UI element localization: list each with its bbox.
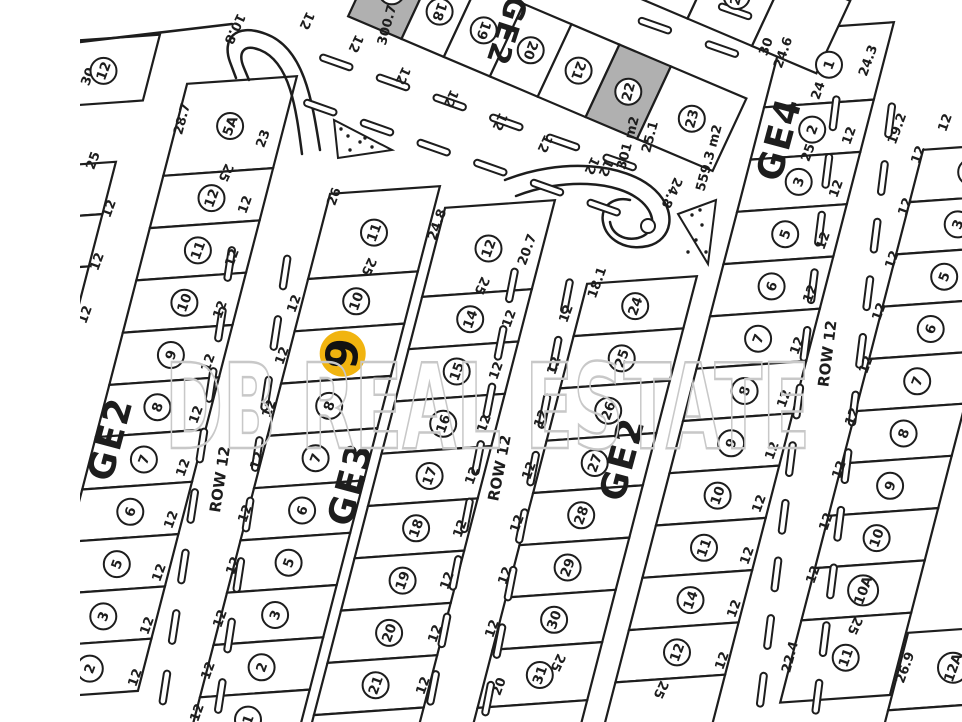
stipple-dot xyxy=(370,145,373,148)
parcel-5[interactable]: 5 xyxy=(772,221,798,247)
parcel-3[interactable]: 3 xyxy=(945,211,962,237)
parcel-23[interactable]: 23 xyxy=(679,106,705,132)
parcel-21[interactable]: 21 xyxy=(566,58,592,84)
parcel-9[interactable]: 9 xyxy=(877,473,903,499)
parcel-22[interactable]: 22 xyxy=(615,79,641,105)
parcel-24[interactable]: 24 xyxy=(622,293,648,319)
stipple-dot xyxy=(363,136,366,139)
parcel-6[interactable]: 6 xyxy=(289,498,315,524)
stipple-dot xyxy=(690,213,693,216)
parcel-11[interactable]: 11 xyxy=(361,220,387,246)
stipple-dot xyxy=(700,223,703,226)
parcel-8[interactable]: 8 xyxy=(891,421,917,447)
parcel-31[interactable]: 31 xyxy=(527,662,553,688)
parcel-10A[interactable]: 10A xyxy=(848,574,878,607)
parcel-10[interactable]: 10 xyxy=(343,288,369,314)
cadastral-map: ROW 12ROW 12ROW 123010.828.7232525121212… xyxy=(0,0,962,722)
stipple-dot xyxy=(704,250,707,253)
parcel-18[interactable]: 18 xyxy=(403,515,429,541)
parcel-2[interactable]: 2 xyxy=(77,656,103,682)
parcel-2[interactable]: 2 xyxy=(249,654,275,680)
parcel-5[interactable]: 5 xyxy=(931,264,957,290)
stipple-dot xyxy=(339,127,342,130)
parcel-28[interactable]: 28 xyxy=(568,502,594,528)
plot-map-page: ROW 12ROW 12ROW 123010.828.7232525121212… xyxy=(0,0,962,722)
parcel-12[interactable]: 12 xyxy=(664,639,690,665)
parcel-30[interactable]: 30 xyxy=(541,607,567,633)
stipple-dot xyxy=(694,238,697,241)
parcel-5[interactable]: 5 xyxy=(104,551,130,577)
parcel-19[interactable]: 19 xyxy=(390,568,416,594)
stipple-dot xyxy=(358,140,361,143)
parcel-12[interactable]: 12 xyxy=(91,58,117,84)
stipple-dot xyxy=(346,134,349,137)
parcel-5A[interactable]: 5A xyxy=(217,113,243,139)
parcel-20[interactable]: 20 xyxy=(376,620,402,646)
parcel-14[interactable]: 14 xyxy=(457,306,483,332)
parcel-12[interactable]: 12 xyxy=(199,185,225,211)
parcel-10[interactable]: 10 xyxy=(864,525,890,551)
manhole-dot xyxy=(641,219,655,233)
parcel-11[interactable]: 11 xyxy=(833,645,859,671)
parcel-7[interactable]: 7 xyxy=(904,368,930,394)
parcel-21[interactable]: 21 xyxy=(363,672,389,698)
parcel-10[interactable]: 10 xyxy=(705,483,731,509)
stipple-dot xyxy=(698,208,701,211)
parcel-29[interactable]: 29 xyxy=(555,555,581,581)
parcel-18[interactable]: 18 xyxy=(427,0,453,25)
page-margin xyxy=(0,0,80,722)
parcel-6[interactable]: 6 xyxy=(117,499,143,525)
parcel-1[interactable]: 1 xyxy=(816,52,842,78)
parcel-5[interactable]: 5 xyxy=(276,550,302,576)
parcel-12[interactable]: 12 xyxy=(476,236,502,262)
parcel-10[interactable]: 10 xyxy=(171,290,197,316)
parcel-7[interactable]: 7 xyxy=(131,447,157,473)
parcel-11[interactable]: 11 xyxy=(185,237,211,263)
stipple-dot xyxy=(348,148,351,151)
stipple-dot xyxy=(686,250,689,253)
parcel-3[interactable]: 3 xyxy=(262,602,288,628)
watermark: DB REAL ESTATE xyxy=(165,338,810,476)
parcel-6[interactable]: 6 xyxy=(918,316,944,342)
parcel-14[interactable]: 14 xyxy=(678,587,704,613)
parcel-11[interactable]: 11 xyxy=(691,535,717,561)
parcel-3[interactable]: 3 xyxy=(90,603,116,629)
parcel-6[interactable]: 6 xyxy=(759,273,785,299)
